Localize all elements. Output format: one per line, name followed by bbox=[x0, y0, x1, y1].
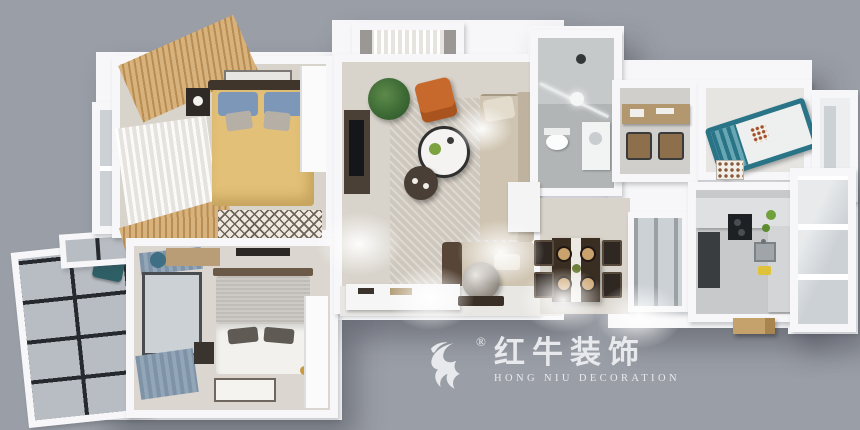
toilet-tank bbox=[544, 128, 570, 135]
window-west bbox=[142, 272, 202, 356]
kids-bedroom bbox=[698, 80, 812, 180]
table-decor-dark bbox=[447, 137, 454, 144]
wardrobe-white bbox=[304, 296, 328, 408]
brand-watermark: ® 红牛装饰 HONG NIU DECORATION bbox=[424, 336, 680, 394]
curtain-lower bbox=[135, 348, 199, 400]
wall-tv bbox=[236, 248, 290, 256]
white-rug bbox=[214, 378, 276, 402]
brand-text-block: 红牛装饰 HONG NIU DECORATION bbox=[494, 336, 680, 384]
dining-table bbox=[552, 238, 600, 302]
brand-name-chinese: 红牛装饰 bbox=[494, 336, 680, 370]
dining-chair-4 bbox=[602, 272, 622, 298]
bathroom bbox=[530, 30, 622, 196]
kitchen-sink bbox=[754, 242, 776, 262]
bedroom-main bbox=[112, 56, 334, 238]
study-nook bbox=[612, 80, 698, 182]
nightstand bbox=[186, 88, 210, 116]
cup bbox=[412, 178, 418, 184]
cabinet-decor-1 bbox=[358, 288, 374, 294]
tall-unit-dark bbox=[698, 232, 720, 288]
greens-on-board bbox=[766, 210, 776, 220]
dining-chair-3 bbox=[602, 240, 622, 266]
plate-4 bbox=[580, 276, 596, 292]
wardrobe-white bbox=[300, 66, 326, 172]
render-canvas: ® 红牛装饰 HONG NIU DECORATION bbox=[0, 0, 860, 430]
nightstand bbox=[194, 342, 214, 364]
patterned-pillow bbox=[749, 123, 769, 143]
greens-2 bbox=[762, 224, 770, 232]
registered-mark: ® bbox=[476, 334, 486, 350]
table-decor-green bbox=[429, 143, 441, 155]
potted-plant bbox=[368, 78, 410, 120]
yellow-dish bbox=[758, 266, 771, 275]
mirror-tray bbox=[458, 296, 504, 306]
toilet bbox=[546, 134, 568, 150]
sideboard-white bbox=[508, 182, 540, 232]
shoe-cabinet bbox=[346, 284, 460, 310]
plate-3 bbox=[580, 246, 596, 262]
cabinet-decor-2 bbox=[390, 288, 412, 295]
dining-chair-1 bbox=[534, 240, 554, 266]
double-bed bbox=[212, 86, 314, 206]
plate-1 bbox=[556, 246, 572, 262]
brand-name-english: HONG NIU DECORATION bbox=[494, 373, 680, 384]
shower-head bbox=[576, 54, 586, 64]
desk-chair-1 bbox=[626, 132, 652, 160]
pillow-dark-right bbox=[263, 327, 294, 345]
burner-1 bbox=[734, 219, 741, 226]
utility-balcony bbox=[790, 168, 856, 332]
kitchen-sliding-glass-door bbox=[628, 212, 688, 312]
ceiling-light-round bbox=[570, 92, 584, 106]
sink-bowl bbox=[589, 132, 602, 145]
desk-chair-teal bbox=[150, 252, 166, 268]
cup-2 bbox=[423, 183, 429, 189]
tv-console bbox=[344, 110, 370, 194]
vanity bbox=[582, 122, 610, 170]
blanket-gray bbox=[216, 276, 310, 324]
headboard bbox=[213, 268, 313, 276]
bull-swoosh-icon bbox=[424, 338, 480, 394]
upper-window-mullion bbox=[96, 238, 102, 260]
study-desk bbox=[622, 104, 690, 124]
desk bbox=[166, 248, 220, 266]
desk-item-2 bbox=[656, 108, 674, 114]
double-bed-gray bbox=[216, 272, 310, 374]
burner-2 bbox=[738, 229, 745, 236]
chaise-pillow bbox=[494, 254, 520, 270]
pillow-dark-left bbox=[227, 326, 258, 344]
pillow-gray-right bbox=[263, 111, 291, 132]
wood-step-outside bbox=[733, 318, 775, 334]
round-decor-mirror bbox=[462, 262, 500, 300]
centerpiece bbox=[572, 264, 581, 273]
dining-chair-2 bbox=[534, 272, 554, 298]
faucet bbox=[761, 239, 766, 244]
side-table-round bbox=[404, 166, 438, 200]
table-lamp bbox=[193, 96, 203, 106]
cooktop bbox=[728, 214, 752, 240]
plate-2 bbox=[556, 276, 572, 292]
kids-rug bbox=[716, 160, 744, 180]
utility-glass-bars bbox=[798, 176, 848, 324]
desk-chair-2 bbox=[658, 132, 684, 160]
pillow-gray-left bbox=[225, 110, 253, 131]
bedroom-second bbox=[126, 238, 338, 418]
tv-screen bbox=[349, 120, 364, 176]
desk-item-1 bbox=[630, 109, 644, 117]
